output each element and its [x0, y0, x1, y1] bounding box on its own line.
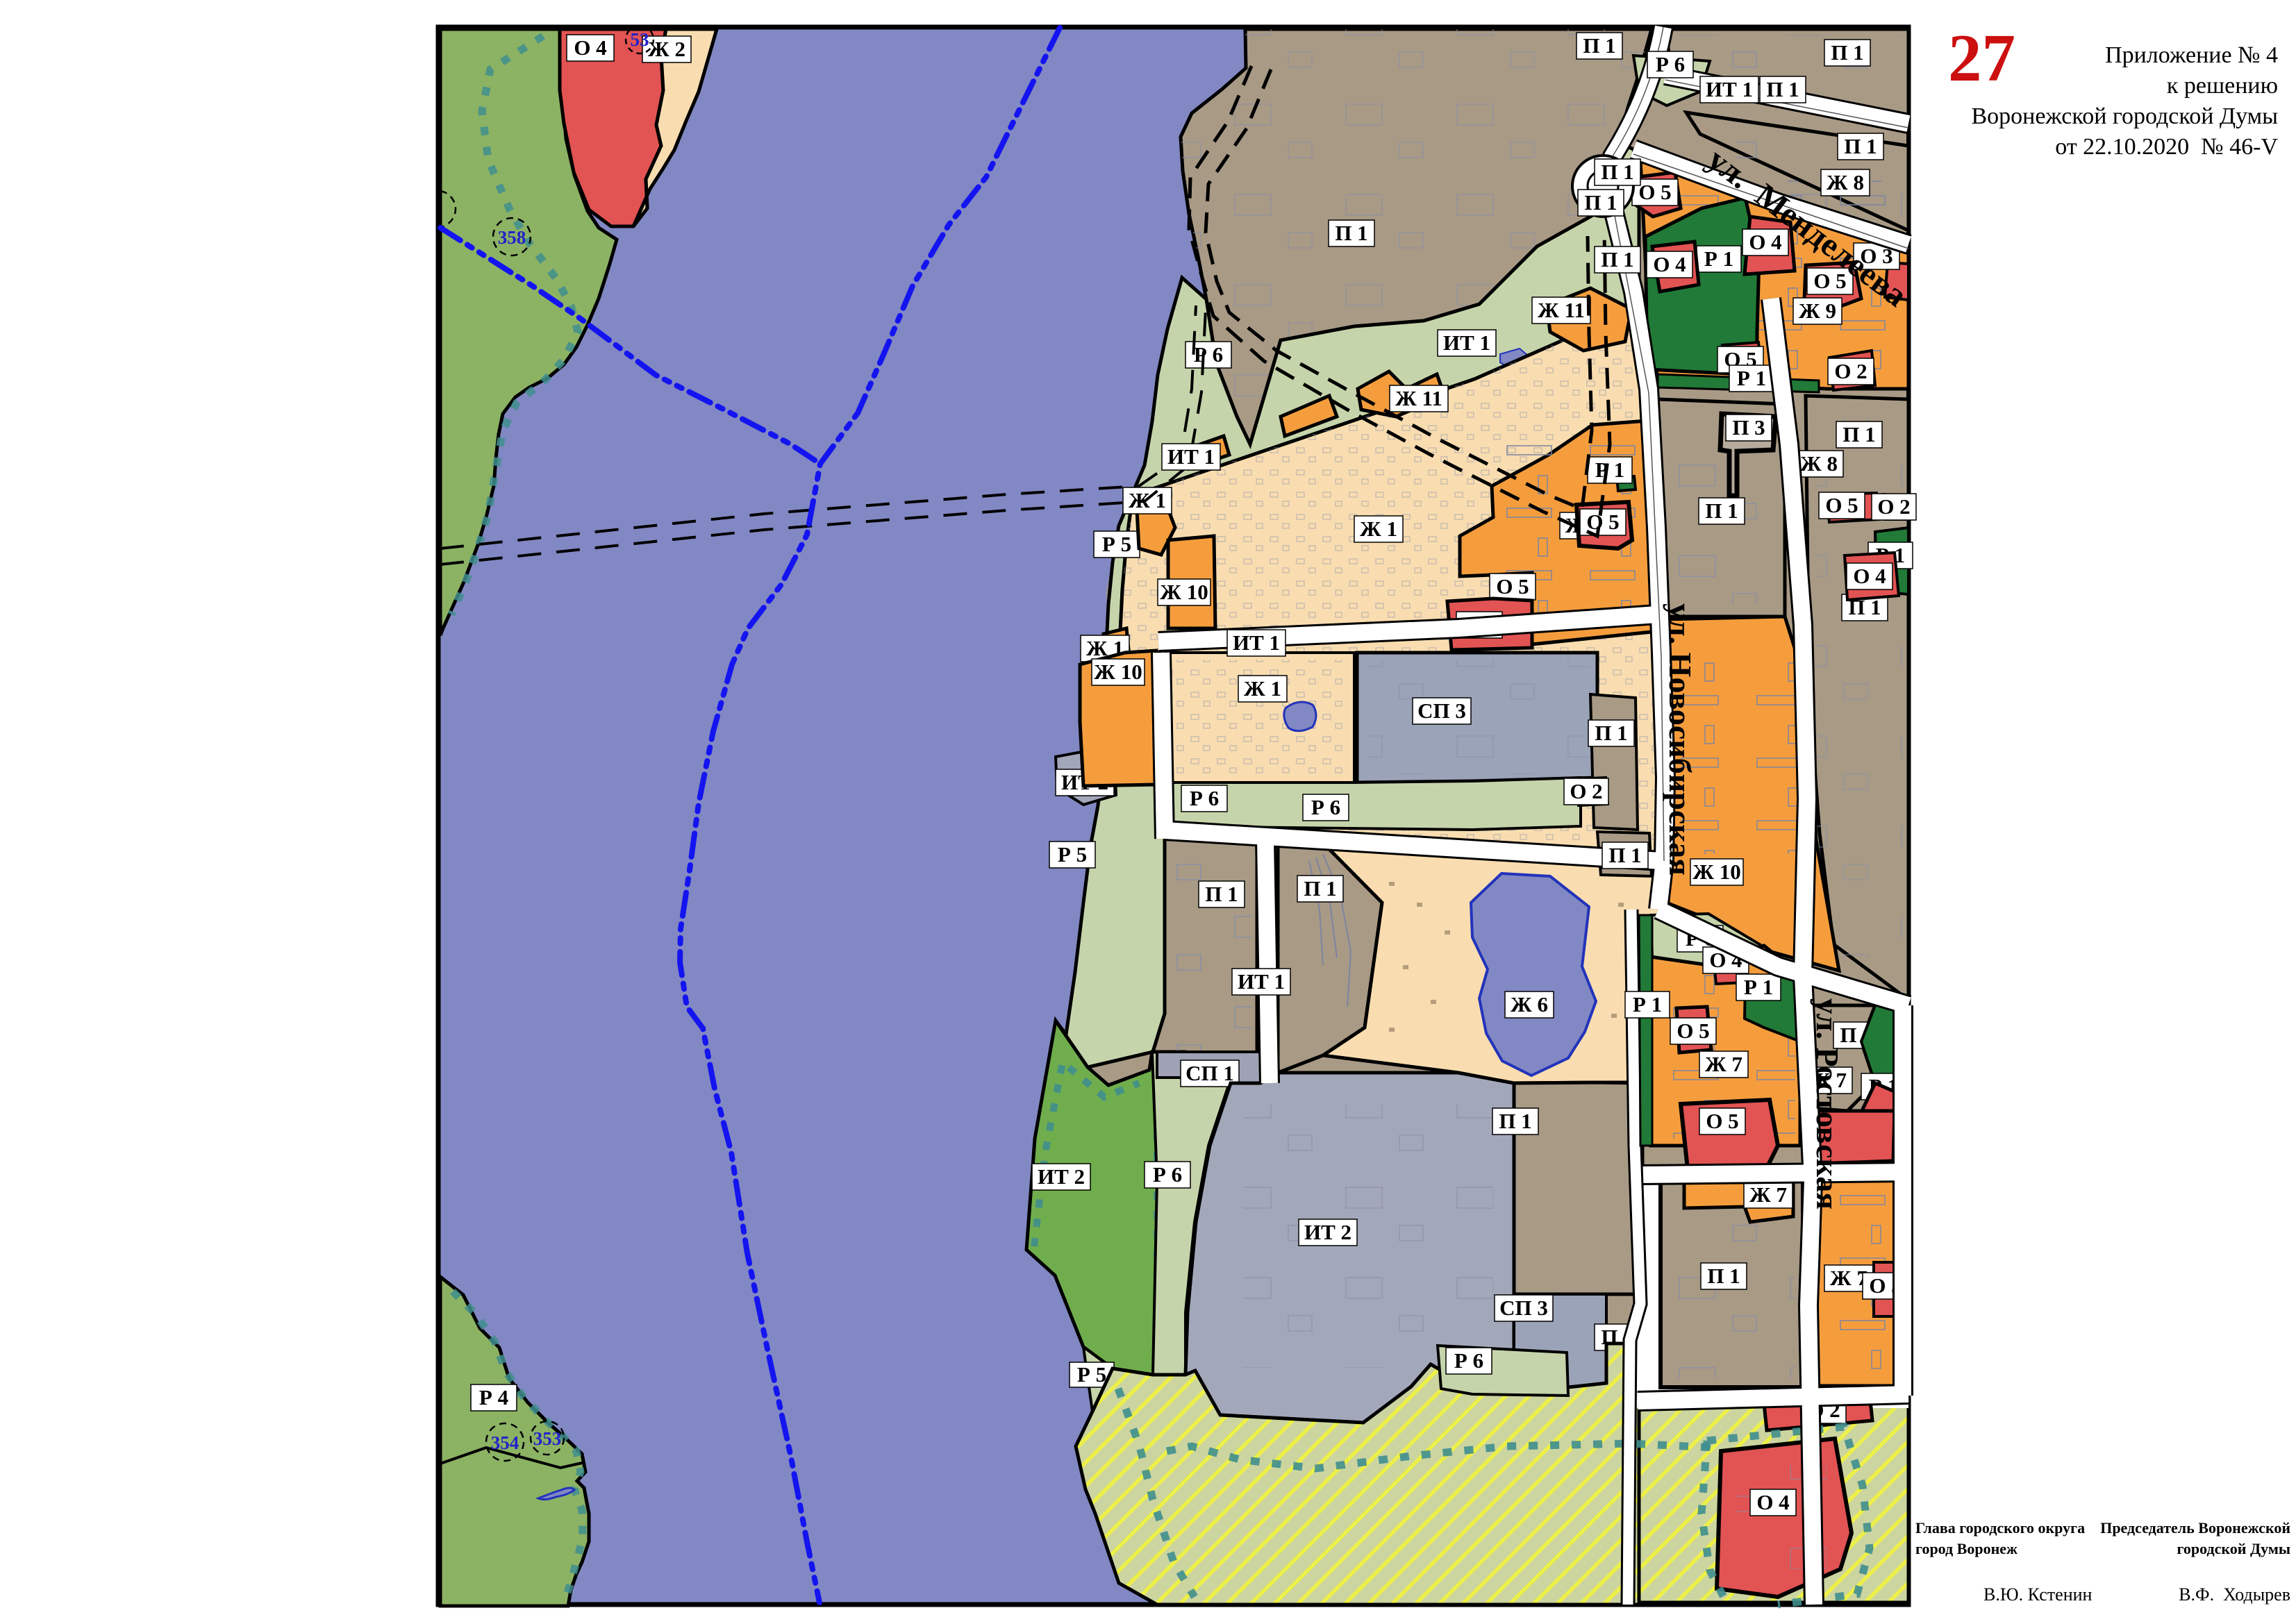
svg-text:Р 6: Р 6 [1153, 1162, 1182, 1187]
svg-text:Ж 11: Ж 11 [1395, 386, 1442, 410]
svg-text:Р 1: Р 1 [1633, 992, 1662, 1016]
svg-text:ул. Новосибирская: ул. Новосибирская [1663, 603, 1698, 876]
svg-text:О 2: О 2 [1877, 494, 1910, 519]
svg-text:П 1: П 1 [1583, 33, 1615, 58]
svg-text:ИТ 2: ИТ 2 [1304, 1220, 1351, 1244]
svg-text:П 1: П 1 [1584, 190, 1617, 215]
svg-text:Р 5: Р 5 [1058, 842, 1087, 867]
svg-text:П 1: П 1 [1205, 882, 1238, 906]
svg-text:СП 3: СП 3 [1417, 698, 1466, 723]
svg-text:Р 1: Р 1 [1595, 458, 1624, 482]
svg-text:Р 4: Р 4 [479, 1385, 508, 1409]
svg-text:Р 1: Р 1 [1704, 246, 1733, 271]
svg-text:П 1: П 1 [1707, 1264, 1740, 1288]
svg-text:Р 6: Р 6 [1194, 342, 1223, 367]
svg-text:53: 53 [631, 29, 649, 50]
svg-text:Ж 10: Ж 10 [1692, 860, 1740, 884]
svg-text:ИТ 1: ИТ 1 [1233, 630, 1280, 655]
svg-text:П 1: П 1 [1842, 422, 1875, 446]
svg-text:358: 358 [498, 227, 526, 248]
svg-text:О 5: О 5 [1706, 1109, 1738, 1133]
svg-text:ИТ 1: ИТ 1 [1167, 444, 1215, 469]
svg-text:Ж 7: Ж 7 [1705, 1052, 1742, 1076]
svg-text:Ж 8: Ж 8 [1827, 170, 1864, 194]
svg-text:Ж 6: Ж 6 [1511, 992, 1548, 1016]
svg-text:П 1: П 1 [1608, 843, 1641, 867]
svg-text:Ж 7: Ж 7 [1749, 1182, 1787, 1207]
svg-text:О 5: О 5 [1638, 180, 1671, 204]
svg-text:ул. Ростовская: ул. Ростовская [1810, 998, 1845, 1209]
svg-text:П 1: П 1 [1499, 1109, 1531, 1133]
svg-text:Ж 9: Ж 9 [1799, 299, 1836, 323]
svg-text:П 1: П 1 [1705, 499, 1738, 523]
svg-text:Р 6: Р 6 [1656, 52, 1685, 76]
svg-text:353: 353 [533, 1428, 562, 1449]
svg-text:Ж 11: Ж 11 [1538, 298, 1585, 322]
svg-text:О 5: О 5 [1586, 510, 1619, 534]
svg-text:СП 1: СП 1 [1186, 1061, 1234, 1085]
svg-text:О 5: О 5 [1677, 1019, 1709, 1043]
svg-text:Р 6: Р 6 [1454, 1348, 1483, 1373]
svg-text:Ж 10: Ж 10 [1160, 580, 1208, 604]
svg-text:СП 3: СП 3 [1499, 1296, 1548, 1320]
svg-text:П 1: П 1 [1304, 876, 1336, 901]
svg-text:П 1: П 1 [1335, 221, 1367, 245]
svg-text:Ж 10: Ж 10 [1094, 660, 1142, 684]
svg-text:Р 6: Р 6 [1311, 795, 1340, 819]
svg-text:Р 1: Р 1 [1737, 366, 1766, 390]
svg-text:Р 5: Р 5 [1077, 1362, 1106, 1387]
svg-text:Р 6: Р 6 [1190, 786, 1219, 810]
svg-text:П 1: П 1 [1601, 247, 1633, 271]
svg-text:О 5: О 5 [1496, 574, 1529, 598]
svg-text:ИТ 1: ИТ 1 [1443, 330, 1490, 355]
svg-text:О 5: О 5 [1825, 493, 1858, 517]
svg-text:П 1: П 1 [1601, 160, 1633, 184]
svg-text:П 1: П 1 [1595, 721, 1627, 745]
svg-text:354: 354 [491, 1432, 519, 1453]
svg-text:Ж 8: Ж 8 [1800, 451, 1838, 476]
svg-text:О 4: О 4 [1853, 564, 1886, 588]
svg-text:О 2: О 2 [1570, 779, 1602, 803]
svg-text:О 4: О 4 [1756, 1490, 1789, 1514]
svg-text:П 3: П 3 [1732, 415, 1765, 440]
svg-text:ИТ 2: ИТ 2 [1038, 1164, 1085, 1189]
svg-text:Ж 7: Ж 7 [1830, 1266, 1867, 1290]
svg-text:Ж 1: Ж 1 [1360, 517, 1397, 541]
svg-text:Ж 1: Ж 1 [1244, 676, 1281, 701]
svg-text:О 4: О 4 [574, 35, 606, 60]
svg-text:Р 5: Р 5 [1102, 532, 1131, 556]
svg-text:ИТ 1: ИТ 1 [1238, 969, 1285, 994]
svg-text:О 2: О 2 [1834, 359, 1867, 383]
svg-text:О 4: О 4 [1653, 252, 1686, 276]
svg-text:Р 1: Р 1 [1744, 975, 1773, 999]
svg-text:О 4: О 4 [1749, 230, 1781, 254]
